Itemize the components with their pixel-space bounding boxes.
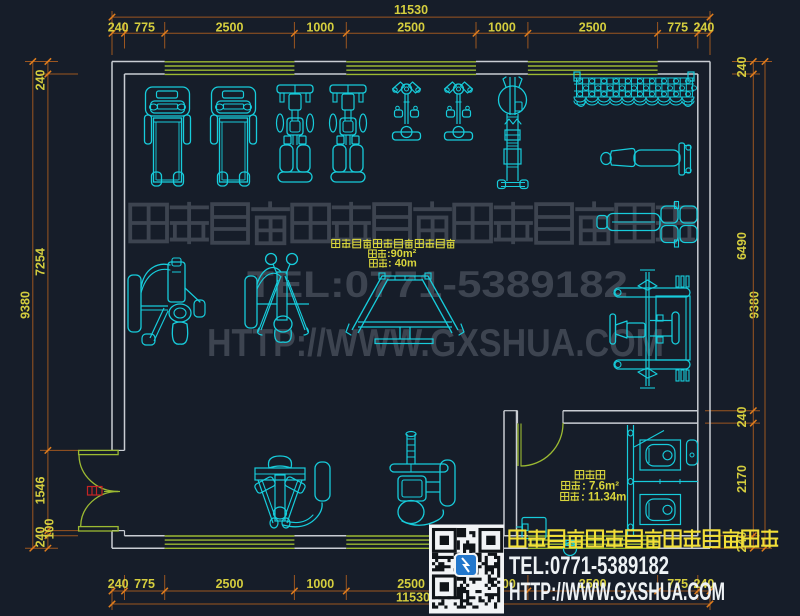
svg-text:2500: 2500 <box>397 20 425 34</box>
svg-text:240: 240 <box>108 577 129 591</box>
svg-text:1000: 1000 <box>306 20 334 34</box>
svg-text:11530: 11530 <box>396 591 430 605</box>
svg-text:1000: 1000 <box>488 20 516 34</box>
svg-text:: 40m: : 40m <box>388 258 417 270</box>
svg-text:TEL:0771-5389182: TEL:0771-5389182 <box>509 552 669 580</box>
svg-text:775: 775 <box>134 20 155 34</box>
svg-text:240: 240 <box>34 527 48 548</box>
svg-text:2500: 2500 <box>216 577 244 591</box>
svg-text:HTTP://WWW.GXSHUA.COM: HTTP://WWW.GXSHUA.COM <box>509 578 725 606</box>
svg-text:2500: 2500 <box>397 577 425 591</box>
svg-text:2500: 2500 <box>579 20 607 34</box>
svg-text:775: 775 <box>667 20 688 34</box>
svg-text:7254: 7254 <box>34 248 48 276</box>
svg-text:6490: 6490 <box>735 232 749 260</box>
svg-text:2170: 2170 <box>735 465 749 493</box>
svg-text:240: 240 <box>693 20 714 34</box>
svg-text:: 11.34m: : 11.34m <box>581 492 626 504</box>
svg-text:11530: 11530 <box>394 3 428 17</box>
svg-text:1000: 1000 <box>306 577 334 591</box>
svg-text:2500: 2500 <box>216 20 244 34</box>
svg-text:240: 240 <box>108 20 129 34</box>
svg-text:1546: 1546 <box>34 477 48 505</box>
svg-text:TEL:0771-5389182: TEL:0771-5389182 <box>247 264 628 305</box>
svg-text:240: 240 <box>34 70 48 91</box>
svg-text:775: 775 <box>134 577 155 591</box>
svg-text:240: 240 <box>735 407 749 428</box>
svg-text:240: 240 <box>735 57 749 78</box>
svg-text:9380: 9380 <box>19 291 33 319</box>
svg-text:9380: 9380 <box>748 291 762 319</box>
